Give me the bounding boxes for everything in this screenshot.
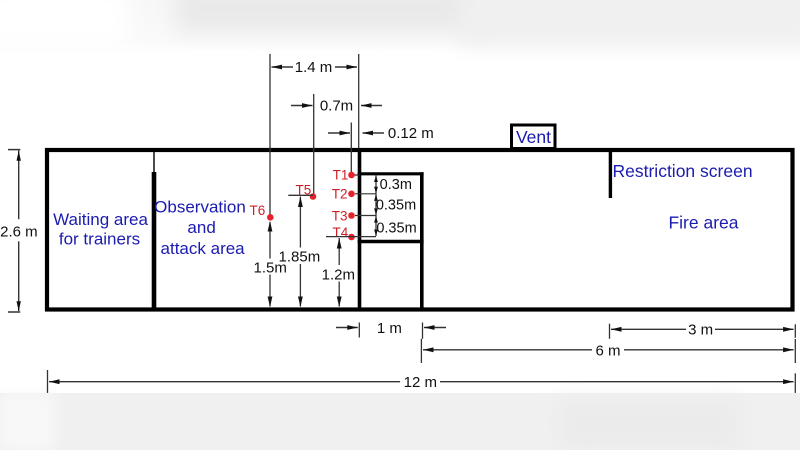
svg-text:0.12 m: 0.12 m bbox=[388, 125, 434, 142]
svg-text:T6: T6 bbox=[250, 203, 266, 218]
svg-text:3 m: 3 m bbox=[688, 321, 713, 338]
svg-text:1 m: 1 m bbox=[377, 320, 402, 337]
svg-text:Restriction screen: Restriction screen bbox=[613, 161, 753, 181]
svg-text:T2: T2 bbox=[332, 187, 348, 202]
svg-text:1.2m: 1.2m bbox=[322, 267, 355, 284]
svg-text:for trainers: for trainers bbox=[59, 230, 140, 249]
svg-text:6 m: 6 m bbox=[595, 342, 620, 359]
svg-text:Vent: Vent bbox=[516, 127, 551, 147]
svg-text:0.35m: 0.35m bbox=[376, 197, 416, 213]
svg-text:T3: T3 bbox=[332, 208, 348, 223]
svg-text:0.7m: 0.7m bbox=[320, 98, 353, 115]
svg-text:attack area: attack area bbox=[161, 239, 246, 258]
svg-text:T1: T1 bbox=[333, 168, 349, 183]
svg-text:0.3m: 0.3m bbox=[380, 177, 412, 193]
svg-text:12 m: 12 m bbox=[404, 374, 437, 391]
svg-text:Waiting area: Waiting area bbox=[53, 210, 148, 229]
svg-text:and: and bbox=[187, 218, 215, 237]
svg-text:1.4 m: 1.4 m bbox=[295, 59, 333, 76]
svg-text:1.85m: 1.85m bbox=[279, 249, 321, 266]
svg-text:T4: T4 bbox=[333, 225, 349, 240]
svg-text:Fire area: Fire area bbox=[668, 212, 738, 232]
svg-text:0.35m: 0.35m bbox=[376, 221, 416, 237]
svg-text:2.6 m: 2.6 m bbox=[0, 224, 38, 241]
svg-text:Observation: Observation bbox=[154, 198, 246, 217]
